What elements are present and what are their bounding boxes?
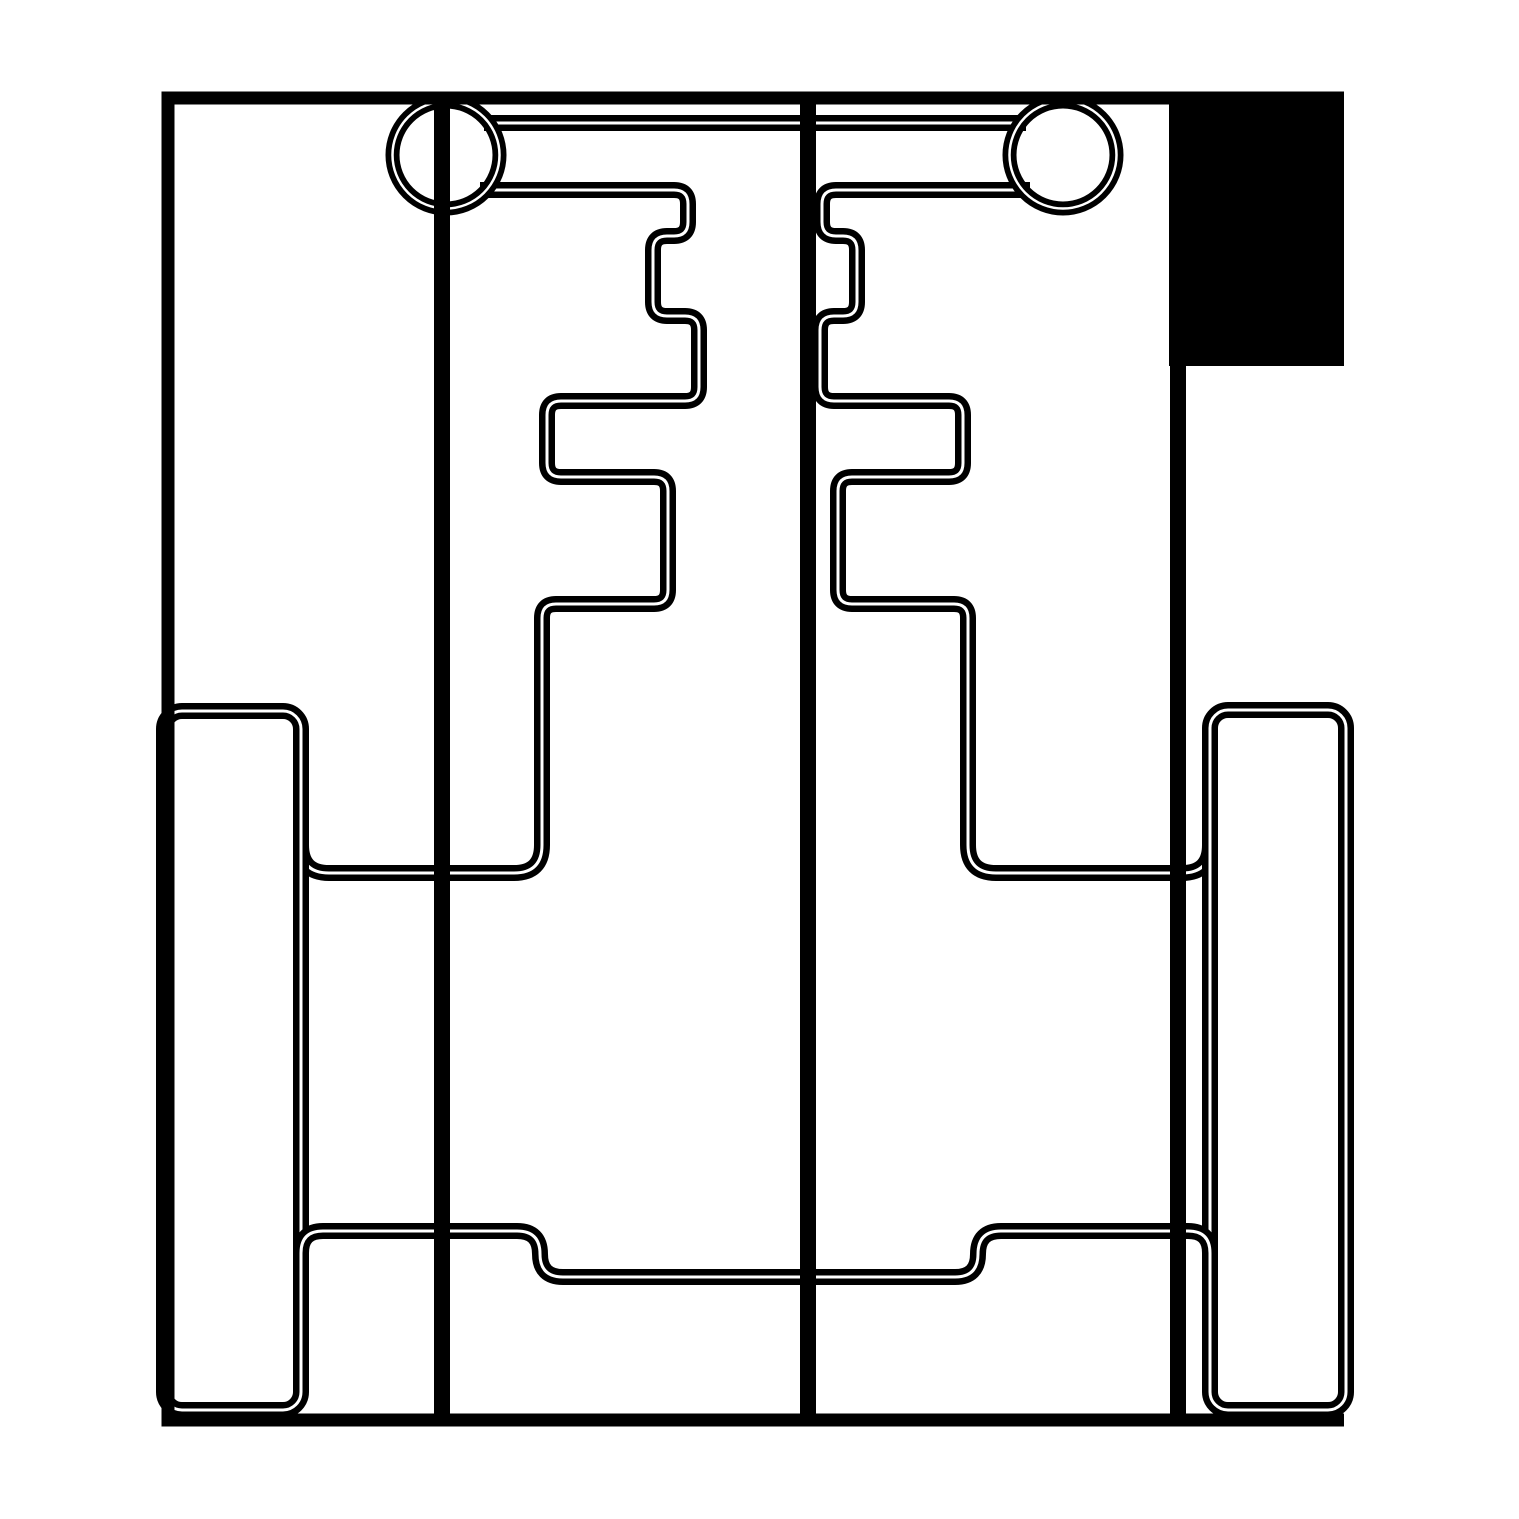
left-runner-outline-core (164, 711, 301, 1410)
drawing-svg (0, 0, 1519, 1519)
right-comb-profile-ink (820, 190, 1210, 873)
right-comb-profile-core (820, 190, 1210, 873)
left-runner-outline-ink (164, 711, 301, 1410)
die-cut-diagram (0, 0, 1519, 1519)
right-wheel-ring-core (1010, 102, 1117, 209)
flag-fill-rect (1169, 92, 1344, 366)
right-runner-outline-ink (1210, 710, 1346, 1410)
right-runner-outline-core (1210, 710, 1346, 1410)
left-comb-profile-core (301, 190, 699, 873)
left-comb-profile-ink (301, 190, 699, 873)
